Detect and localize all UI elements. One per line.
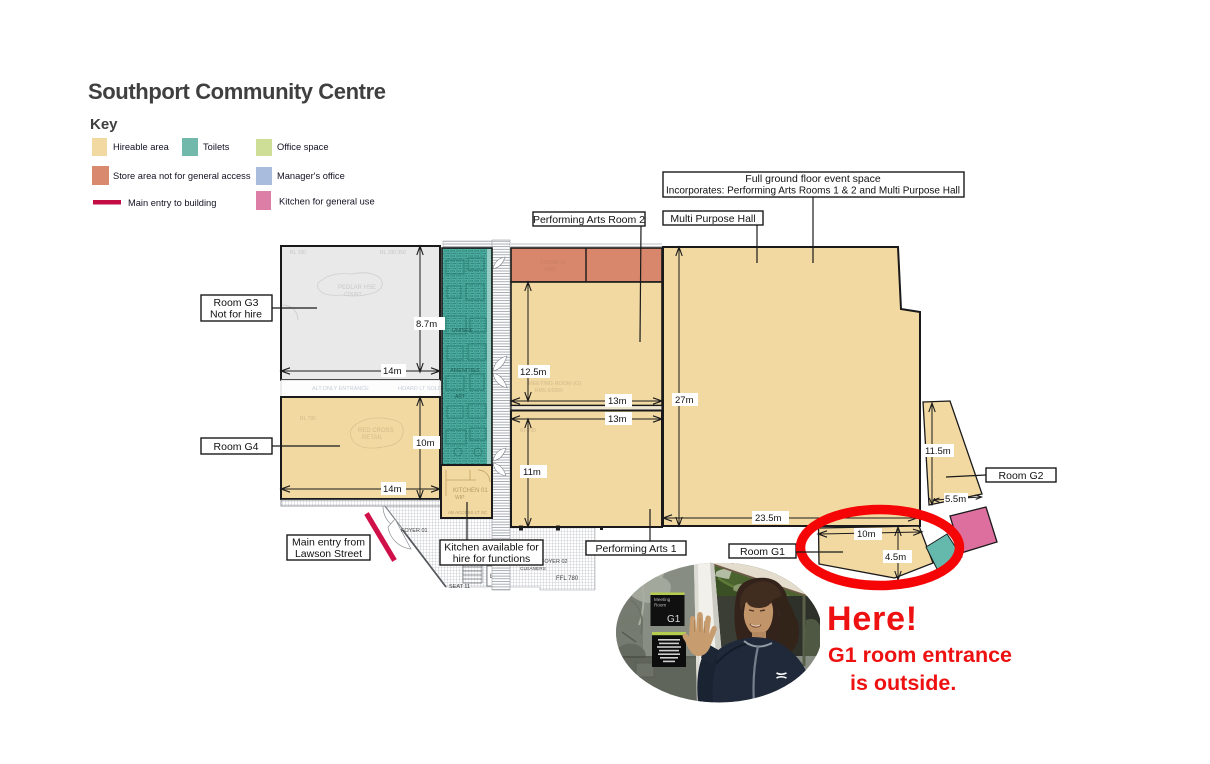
svg-text:Multi Purpose Hall: Multi Purpose Hall	[670, 213, 755, 225]
svg-text:Incorporates: Performing Arts: Incorporates: Performing Arts Rooms 1 & …	[666, 186, 960, 197]
svg-text:ART: ART	[455, 394, 465, 400]
svg-text:RAS: RAS	[545, 267, 556, 273]
svg-text:27m: 27m	[675, 395, 694, 406]
svg-text:Meeting: Meeting	[654, 597, 671, 602]
svg-text:5.5m: 5.5m	[945, 494, 966, 505]
svg-text:Room: Room	[654, 603, 666, 608]
svg-text:Not for hire: Not for hire	[210, 309, 262, 321]
svg-text:ALT.ONLY ENTRANCE: ALT.ONLY ENTRANCE	[312, 386, 369, 392]
svg-text:Manager's office: Manager's office	[277, 171, 345, 181]
svg-text:COURT: COURT	[344, 292, 362, 298]
svg-text:RETAIL: RETAIL	[362, 435, 383, 441]
svg-text:G1 room entrance: G1 room entrance	[828, 643, 1012, 667]
svg-text:G1: G1	[667, 614, 681, 625]
svg-text:Office space: Office space	[277, 142, 329, 152]
svg-text:RL 790: RL 790	[300, 416, 316, 422]
svg-text:Performing Arts Room 2: Performing Arts Room 2	[533, 214, 645, 226]
svg-text:13m: 13m	[608, 414, 627, 425]
svg-text:Room G3: Room G3	[214, 297, 259, 309]
svg-text:4.5m: 4.5m	[885, 552, 906, 563]
svg-text:hire for functions: hire for functions	[453, 553, 531, 565]
svg-text:FOYER 01: FOYER 01	[401, 528, 428, 534]
svg-text:Store area not for general acc: Store area not for general access	[113, 171, 251, 181]
svg-text:UNISEX: UNISEX	[452, 328, 473, 334]
svg-text:WIP: WIP	[455, 495, 465, 501]
svg-text:Hireable area: Hireable area	[113, 142, 170, 152]
svg-text:Main entry from: Main entry from	[292, 537, 365, 549]
svg-text:Kitchen available for: Kitchen available for	[444, 542, 539, 554]
svg-text:Main entry to building: Main entry to building	[128, 198, 216, 208]
svg-text:KITCHEN 01: KITCHEN 01	[453, 488, 488, 494]
svg-text:HOARD LT SOLD: HOARD LT SOLD	[398, 386, 442, 392]
svg-text:11m: 11m	[523, 467, 541, 478]
svg-text:11.5m: 11.5m	[925, 446, 951, 457]
svg-text:10m: 10m	[416, 438, 435, 449]
svg-text:Kitchen for general use: Kitchen for general use	[279, 197, 375, 207]
svg-text:14m: 14m	[383, 366, 402, 377]
svg-text:12.5m: 12.5m	[520, 367, 546, 378]
svg-text:Key: Key	[90, 116, 118, 133]
svg-text:FFL 780: FFL 780	[556, 576, 579, 582]
svg-text:Performing Arts 1: Performing Arts 1	[595, 543, 676, 555]
svg-text:AB ACCESS LT SC: AB ACCESS LT SC	[448, 510, 488, 515]
svg-text:is outside.: is outside.	[850, 671, 956, 695]
svg-text:Full ground floor event space: Full ground floor event space	[745, 173, 881, 185]
svg-text:RMS 6/2000: RMS 6/2000	[535, 388, 563, 394]
svg-text:23.5m: 23.5m	[755, 513, 781, 524]
svg-text:Toilets: Toilets	[203, 142, 230, 152]
svg-text:8.7m: 8.7m	[416, 319, 437, 330]
svg-text:Room G2: Room G2	[999, 470, 1044, 482]
svg-text:PEDLAR HSE: PEDLAR HSE	[338, 285, 376, 291]
svg-text:RED CROSS: RED CROSS	[358, 428, 394, 434]
svg-text:13m: 13m	[608, 396, 627, 407]
svg-text:14m: 14m	[383, 484, 402, 495]
svg-text:RL 100: RL 100	[290, 250, 306, 256]
svg-text:CLEANERS: CLEANERS	[520, 566, 546, 572]
svg-text:Room G1: Room G1	[740, 546, 785, 558]
svg-text:Room G4: Room G4	[214, 441, 259, 453]
svg-text:MEETING ROOM (G): MEETING ROOM (G)	[528, 381, 581, 387]
svg-text:RL 100.350: RL 100.350	[380, 250, 406, 256]
svg-text:10m: 10m	[857, 529, 876, 540]
svg-text:AMENITIES: AMENITIES	[450, 368, 480, 374]
svg-text:FOYER 02: FOYER 02	[541, 559, 568, 565]
svg-text:Here!: Here!	[827, 600, 918, 638]
svg-text:Southport Community Centre: Southport Community Centre	[88, 79, 386, 104]
svg-text:Lawson Street: Lawson Street	[295, 548, 362, 560]
svg-text:STORE 01: STORE 01	[540, 260, 567, 266]
svg-text:SEAT 11: SEAT 11	[449, 584, 470, 590]
